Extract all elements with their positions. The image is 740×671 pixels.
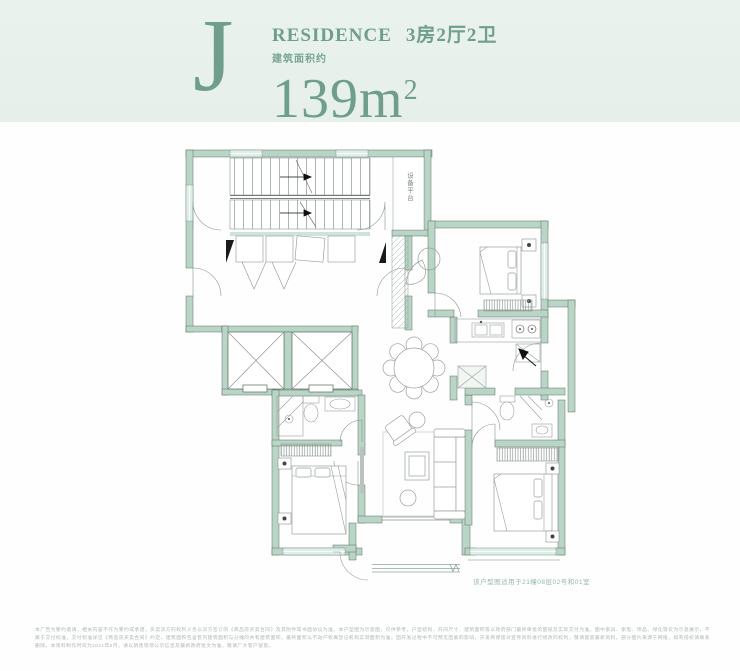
wardrobe bbox=[497, 448, 559, 461]
corner-shower bbox=[520, 396, 542, 420]
pillow bbox=[508, 251, 516, 268]
master-bedroom bbox=[494, 448, 559, 542]
pillow bbox=[508, 273, 516, 290]
wardrobe bbox=[484, 300, 532, 311]
lamp bbox=[551, 467, 555, 471]
balcony-railing bbox=[372, 565, 460, 573]
lamp bbox=[527, 243, 531, 247]
pillow bbox=[534, 479, 542, 497]
toilet bbox=[304, 404, 318, 422]
floorplan-drawing: 设备平台 bbox=[0, 0, 740, 671]
equipment-platform: 设备平台 bbox=[392, 157, 424, 328]
master-bathroom bbox=[500, 396, 553, 437]
pouf bbox=[400, 490, 416, 506]
tv-cabinet bbox=[360, 447, 364, 493]
storage-lockers bbox=[236, 236, 355, 289]
toilet-tank bbox=[500, 396, 515, 402]
pillow bbox=[315, 468, 330, 477]
floor-applicability-note: 该户型图适用于21幢08层02号和01室 bbox=[473, 576, 590, 586]
side-table bbox=[409, 412, 425, 428]
elevator-door bbox=[243, 385, 267, 392]
toilet bbox=[500, 402, 514, 420]
sofa bbox=[434, 429, 465, 519]
bedroom-2 bbox=[278, 444, 346, 534]
pillow bbox=[296, 468, 311, 477]
lamp bbox=[551, 535, 555, 539]
dining-table bbox=[394, 348, 434, 388]
floorplan-poster: J RESIDENCE3房2厅2卫 建筑面积约 139m2 bbox=[0, 0, 740, 671]
elevator-door bbox=[309, 385, 333, 392]
lamp bbox=[283, 462, 287, 466]
corridor-left-door bbox=[193, 268, 221, 296]
kitchen bbox=[455, 319, 541, 388]
entry-arrow bbox=[519, 349, 536, 366]
toilet-tank bbox=[303, 396, 319, 403]
ac-platform-hatch bbox=[392, 236, 408, 328]
pillow bbox=[534, 501, 542, 519]
stairhall-left-door bbox=[193, 202, 221, 230]
dining-area bbox=[383, 337, 445, 399]
shower bbox=[277, 396, 303, 436]
stair-handrail bbox=[230, 196, 370, 199]
wardrobe bbox=[281, 444, 331, 456]
master-bath-door bbox=[472, 424, 495, 447]
legal-disclaimer: 本广告为要约邀请，相关内容不作为要约或承诺，买卖双方的权利义务以双方签订的《商品… bbox=[35, 627, 710, 651]
bed bbox=[494, 474, 552, 531]
bedroom-1 bbox=[480, 239, 536, 311]
main-entry-door bbox=[513, 343, 541, 371]
living-room bbox=[360, 412, 465, 519]
lamp bbox=[283, 517, 287, 521]
staircase bbox=[230, 158, 370, 229]
